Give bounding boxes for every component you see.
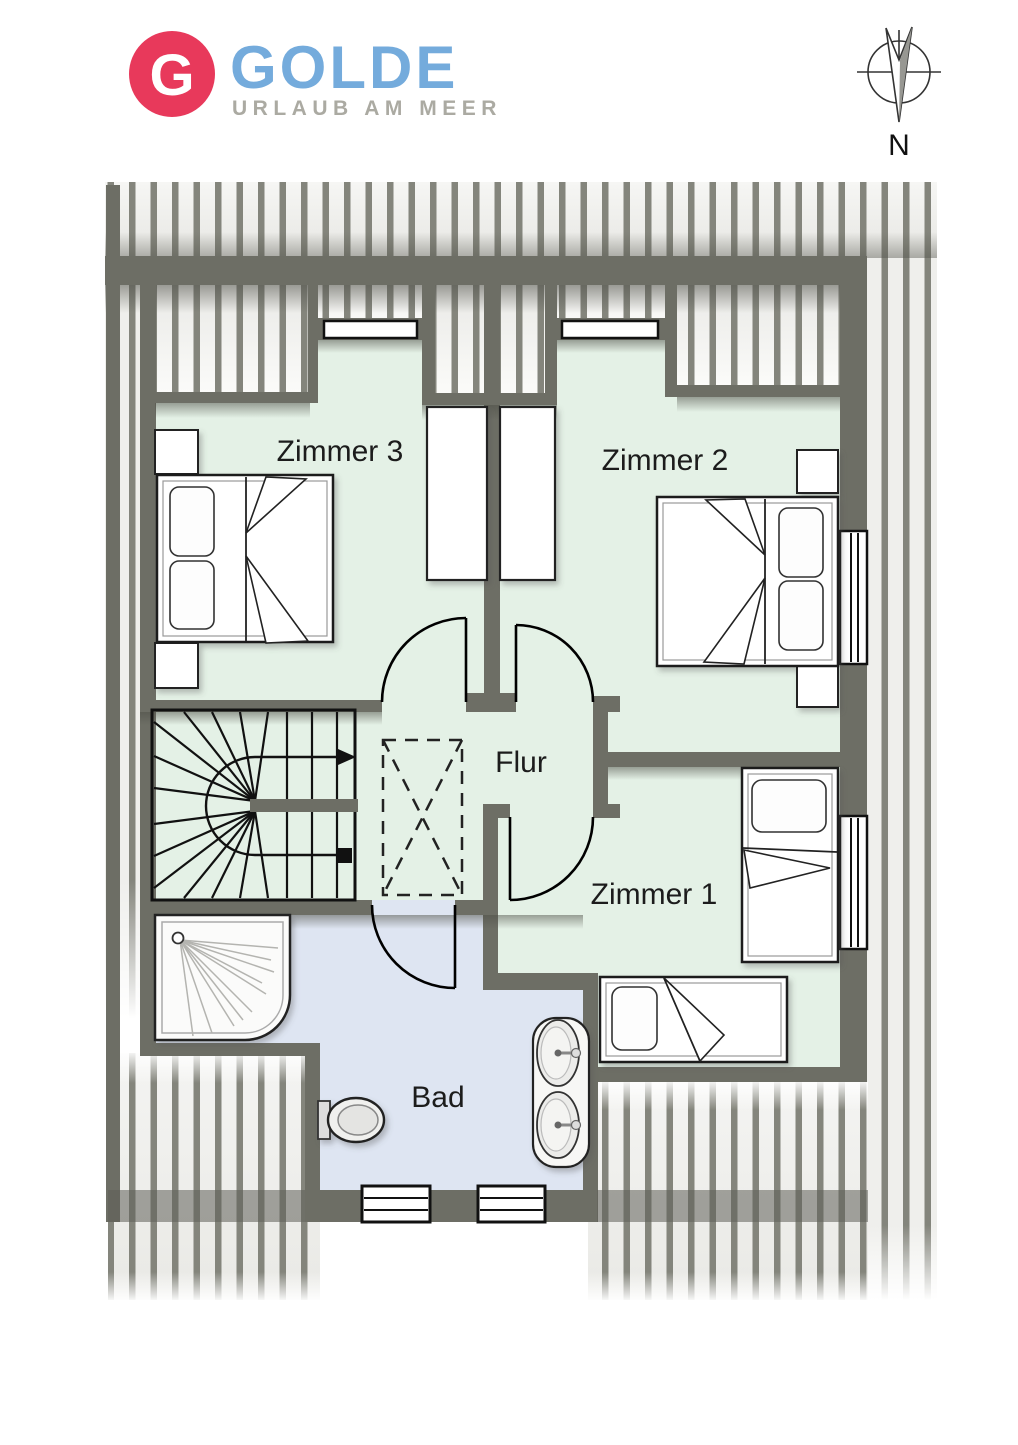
bath-window-right	[478, 1186, 545, 1222]
single-bed-horizontal	[600, 977, 787, 1062]
nightstand	[797, 450, 838, 493]
nightstand	[155, 643, 198, 688]
single-bed-vertical	[742, 768, 838, 962]
logo: G GOLDE URLAUB AM MEER	[129, 31, 502, 120]
pillow	[170, 561, 214, 629]
faucet	[555, 1122, 562, 1129]
double-washbasin	[533, 1018, 589, 1167]
stair-start-marker	[337, 848, 352, 863]
double-bed-zimmer3	[157, 475, 333, 643]
wall-inner-left	[140, 285, 156, 1050]
compass-north-label: N	[888, 129, 910, 162]
logo-brand-text: GOLDE	[230, 34, 458, 101]
faucet	[555, 1050, 562, 1057]
pillow	[752, 780, 826, 832]
wall-bottom	[305, 1190, 598, 1222]
nightstand	[797, 664, 838, 707]
side-window-zimmer2	[840, 531, 867, 664]
dormer-window-zimmer2	[562, 321, 658, 338]
room-label-zimmer2: Zimmer 2	[602, 444, 729, 477]
toilet	[318, 1098, 384, 1142]
dormer-window-zimmer3	[324, 321, 417, 338]
wall-zimmer2-zimmer1	[605, 752, 840, 767]
shower-head	[173, 933, 184, 944]
wall-zimmer1-south	[588, 1067, 867, 1082]
wardrobe-zimmer3	[427, 407, 487, 580]
corner-shower	[155, 915, 290, 1040]
pillow	[779, 508, 823, 577]
pillow	[612, 987, 657, 1050]
floor-plan-canvas: G GOLDE URLAUB AM MEER N	[0, 0, 1018, 1440]
room-label-flur: Flur	[495, 746, 547, 779]
wardrobe-zimmer2	[500, 407, 555, 580]
room-label-zimmer1: Zimmer 1	[591, 878, 718, 911]
nightstand	[155, 430, 198, 474]
room-label-bad: Bad	[411, 1081, 464, 1114]
compass-rose	[857, 27, 941, 122]
room-label-zimmer3: Zimmer 3	[277, 435, 404, 468]
double-bed-zimmer2	[657, 497, 838, 666]
floor-plan-page: G GOLDE URLAUB AM MEER N	[0, 0, 1018, 1440]
logo-tagline: URLAUB AM MEER	[232, 97, 502, 120]
pillow	[779, 581, 823, 650]
logo-monogram: G	[149, 43, 194, 108]
wall-band-left	[108, 1190, 305, 1222]
side-window-zimmer1	[840, 816, 867, 949]
wall-outer-left-line	[106, 185, 120, 1222]
pillow	[170, 487, 214, 556]
wall-band-right	[597, 1190, 868, 1222]
wall-outer-right	[840, 256, 867, 1082]
bath-window-left	[362, 1186, 430, 1222]
stair-divider-wall	[250, 799, 358, 812]
